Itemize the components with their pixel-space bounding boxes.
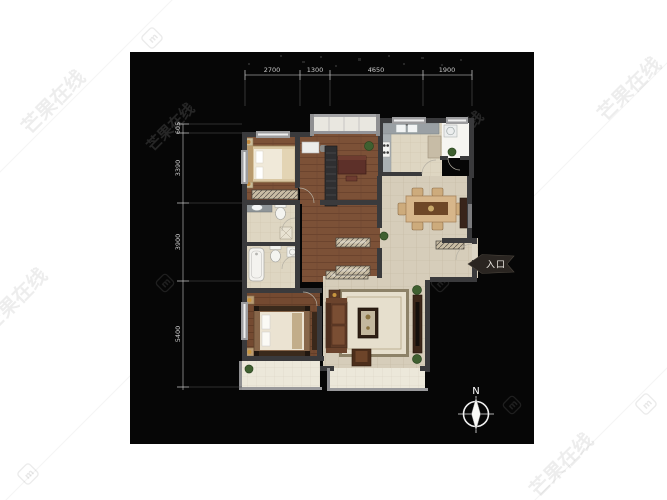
compass-north-label: N [472, 386, 479, 397]
dining-chair [432, 222, 443, 230]
wardrobe-label-band [340, 269, 366, 272]
plant-icon [365, 142, 374, 151]
entry-door-gap [472, 244, 477, 260]
floor-plan: 芒果在线 芒果在线 m m m [130, 52, 534, 444]
desk [302, 142, 319, 153]
armchair [352, 349, 371, 366]
dining-hall-floor [380, 176, 472, 280]
centerpiece [428, 206, 434, 212]
balcony-rail [239, 387, 322, 390]
window [468, 204, 472, 228]
watermark-logo-icon: m [141, 27, 164, 50]
balcony-rail [327, 388, 428, 391]
sofa [326, 298, 347, 353]
watermark-text: 芒果在线 [593, 52, 667, 126]
sideboard-cabinet [460, 198, 468, 228]
dim-label: 3900 [174, 234, 182, 251]
dining-chair [412, 222, 423, 230]
lamp [248, 298, 252, 302]
balcony-rail-post [327, 368, 330, 391]
wardrobe [252, 190, 298, 199]
washer [444, 125, 457, 137]
floor-plan-board: 芒果在线 芒果在线 m m m [130, 52, 534, 444]
window-glass [244, 304, 246, 338]
plant-icon [413, 355, 422, 364]
window-glass [394, 120, 424, 122]
coffee-table [358, 308, 378, 338]
watermark-logo-icon: m [635, 393, 658, 416]
plant-icon [413, 286, 422, 295]
bed [247, 146, 297, 182]
shower [280, 227, 292, 239]
dim-label: 1900 [439, 66, 456, 74]
dim-label: 5400 [174, 326, 182, 343]
kitchen-sink [408, 125, 418, 133]
watermark-logo-icon: m [502, 395, 522, 415]
stove [382, 142, 390, 157]
window-glass [258, 134, 288, 136]
dining-chair [432, 188, 443, 196]
bed [254, 306, 310, 356]
dresser [312, 312, 317, 350]
entrance-label: 入口 [486, 260, 506, 271]
dim-label: 605 [174, 122, 182, 134]
watermark-logo-icon: m [17, 463, 40, 486]
balcony-left-floor [242, 361, 320, 387]
dimension-top: 2700 1300 4650 1900 [245, 66, 472, 106]
window-glass [244, 152, 246, 182]
toilet [270, 245, 281, 262]
watermark-text: 芒果在线 [525, 428, 599, 500]
watermark-text: 芒果在线 [0, 263, 52, 337]
dim-label: 4650 [368, 66, 385, 74]
dining-chair [412, 188, 423, 196]
kitchen-sink [396, 125, 406, 133]
toilet [275, 203, 286, 220]
bedroom-2 [244, 138, 298, 199]
compass-needle [472, 398, 481, 430]
kitchen-cabinet [428, 136, 441, 158]
bathtub [249, 248, 264, 281]
plant-icon [245, 365, 253, 373]
sink-basin [252, 204, 263, 210]
screenshot-page: 芒果在线 芒果在线 芒果在线 芒果在线 m m m [0, 0, 667, 500]
table-lamp [333, 293, 337, 297]
balcony-rail-post [239, 361, 242, 390]
dining-chair [398, 203, 406, 215]
balcony-top [310, 114, 380, 136]
dim-label: 3390 [174, 160, 182, 177]
lamp [247, 140, 251, 144]
tv-cabinet [413, 295, 422, 353]
dimension-left: 605 3390 3900 5400 [174, 122, 242, 390]
window-glass [448, 120, 466, 122]
wardrobe-label-band [340, 241, 366, 244]
watermark-text: 芒果在线 [143, 100, 198, 155]
plant-icon [380, 232, 388, 240]
compass: N [458, 386, 494, 433]
plant-icon [448, 148, 456, 156]
lamp [248, 350, 252, 354]
dim-label: 1300 [307, 66, 324, 74]
watermark-text: 芒果在线 [17, 65, 91, 139]
balcony-right-floor [330, 368, 425, 388]
wardrobe-column [325, 146, 337, 206]
dim-label: 2700 [264, 66, 281, 74]
watermark-logo-icon: m [155, 273, 175, 293]
